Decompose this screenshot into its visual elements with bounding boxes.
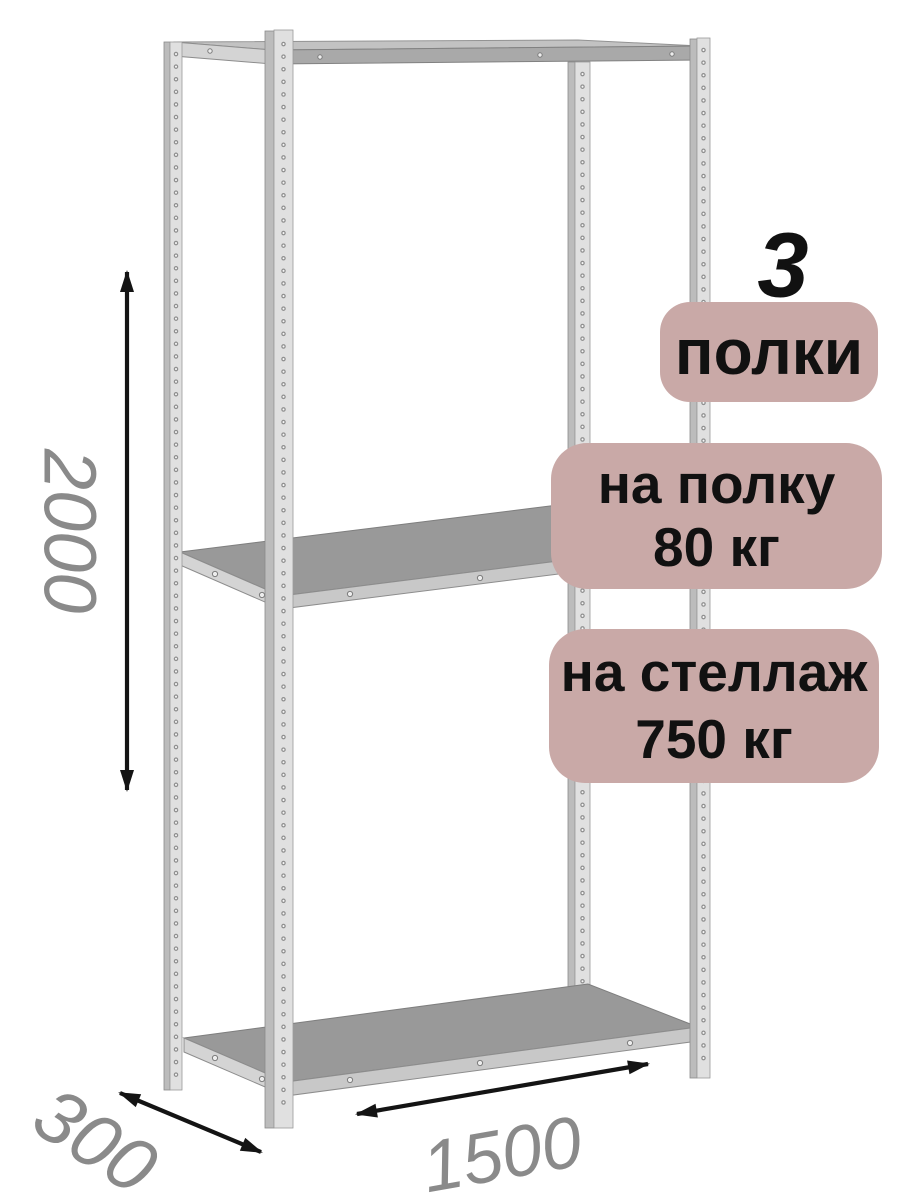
- rack-rear-left-post: [164, 42, 182, 1090]
- shelf-load-line2: 80 кг: [653, 516, 780, 579]
- shelf-load-line1: на полку: [598, 453, 836, 516]
- rack-front-left-post: [265, 30, 293, 1128]
- rack-top-shelf: [174, 40, 700, 64]
- rack-drawing: [0, 0, 900, 1200]
- height-dimension-label: 2000: [28, 449, 113, 614]
- shelf-count-badge: полки: [660, 302, 878, 402]
- shelf-load-badge: на полку 80 кг: [551, 443, 882, 589]
- product-illustration: 2000 300 1500 3 полки на полку 80 кг на …: [0, 0, 900, 1200]
- rack-load-badge: на стеллаж 750 кг: [549, 629, 879, 783]
- rack-bottom-shelf: [184, 984, 698, 1096]
- rack-load-line1: на стеллаж: [561, 639, 868, 706]
- rack-load-line2: 750 кг: [635, 706, 792, 773]
